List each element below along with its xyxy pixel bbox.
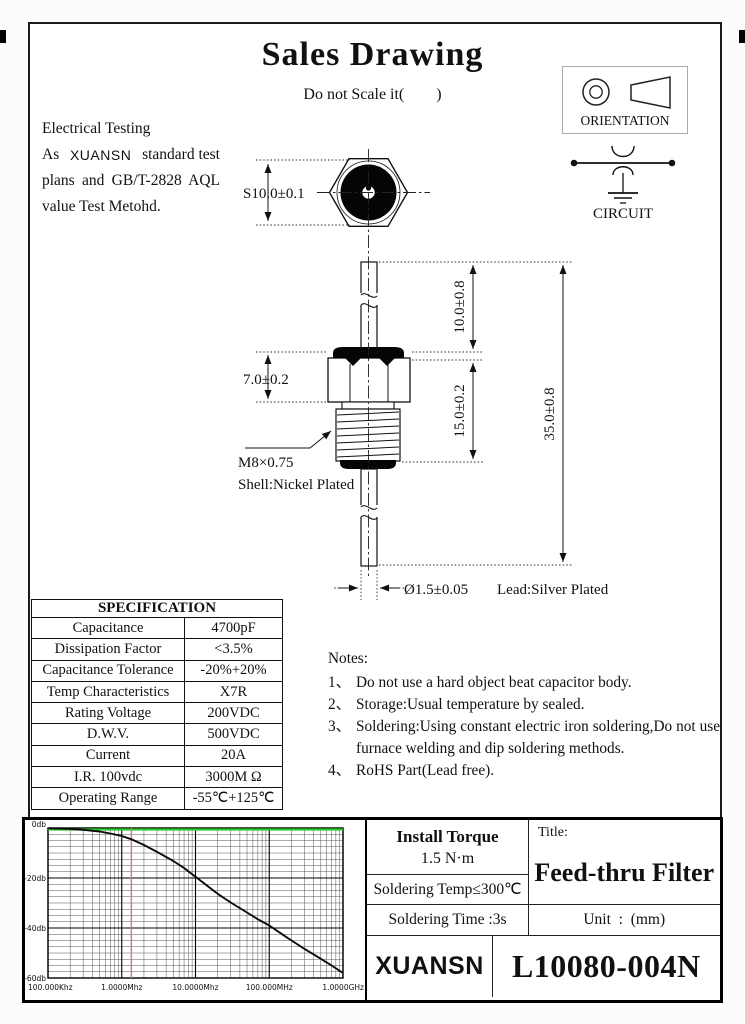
note-text: Storage:Usual temperature by sealed.	[356, 696, 585, 713]
circuit-label: CIRCUIT	[558, 206, 688, 223]
spec-label: Operating Range	[32, 788, 185, 809]
spec-value: X7R	[185, 681, 283, 702]
note-number: 1、	[328, 672, 351, 694]
spec-value: <3.5%	[185, 639, 283, 660]
spec-label: Current	[32, 745, 185, 766]
note-number: 4、	[328, 760, 351, 782]
specification-table: SPECIFICATION Capacitance4700pF Dissipat…	[31, 599, 283, 810]
svg-text:100.000MHz: 100.000MHz	[246, 983, 293, 992]
capacitor-end-hole-icon	[590, 86, 602, 98]
soldering-time-cell: Soldering Time :3s	[367, 905, 529, 936]
brand-name-inline: XUANSN	[70, 142, 131, 168]
spec-label: Rating Voltage	[32, 703, 185, 724]
table-row: Capacitance4700pF	[32, 618, 283, 639]
capacitor-side-view-icon	[631, 77, 670, 108]
bottom-block: 0db-20db-40db-60db100.000Khz1.0000Mhz10.…	[22, 817, 723, 1003]
part-number-cell: L10080-004N	[493, 936, 720, 997]
notes-section: Notes: 1、Do not use a hard object beat c…	[328, 648, 720, 782]
table-row: Dissipation Factor<3.5%	[32, 639, 283, 660]
note-number: 2、	[328, 694, 351, 716]
svg-text:-40db: -40db	[25, 924, 46, 933]
spec-label: I.R. 100vdc	[32, 767, 185, 788]
table-row: D.W.V.500VDC	[32, 724, 283, 745]
spec-label: D.W.V.	[32, 724, 185, 745]
note-line-2-word: standard test	[142, 142, 220, 168]
chart-canvas: 0db-20db-40db-60db100.000Khz1.0000Mhz10.…	[25, 820, 365, 1000]
svg-text:10.0000Mhz: 10.0000Mhz	[172, 983, 218, 992]
spec-value: 3000M Ω	[185, 767, 283, 788]
electrical-testing-note: Electrical Testing As XUANSN standard te…	[42, 116, 220, 220]
install-torque-label: Install Torque	[396, 827, 498, 847]
spec-table-title: SPECIFICATION	[32, 600, 283, 618]
note-text: RoHS Part(Lead free).	[356, 762, 494, 779]
table-row: Current20A	[32, 745, 283, 766]
svg-text:-60db: -60db	[25, 974, 46, 983]
unit-cell: Unit : (mm)	[529, 905, 720, 936]
svg-text:100.000Khz: 100.000Khz	[28, 983, 73, 992]
orientation-label: ORIENTATION	[563, 113, 687, 129]
title-block: Install Torque 1.5 N·m Soldering Temp≤30…	[365, 820, 720, 1000]
notes-heading: Notes:	[328, 648, 720, 670]
table-row: Operating Range-55℃+125℃	[32, 788, 283, 809]
spec-label: Temp Characteristics	[32, 681, 185, 702]
table-row: Temp CharacteristicsX7R	[32, 681, 283, 702]
install-torque-value: 1.5 N·m	[421, 850, 474, 868]
table-row: Rating Voltage200VDC	[32, 703, 283, 724]
orientation-symbol-icon	[563, 67, 687, 113]
spec-value: 20A	[185, 745, 283, 766]
note-text: Do not use a hard object beat capacitor …	[356, 674, 632, 691]
note-line-2: As XUANSN standard test	[42, 142, 220, 168]
spec-value: 200VDC	[185, 703, 283, 724]
svg-text:1.0000GHz: 1.0000GHz	[322, 983, 364, 992]
title-cell: Title: Feed-thru Filter	[529, 820, 720, 905]
orientation-box: ORIENTATION	[562, 66, 688, 134]
install-torque-cell: Install Torque 1.5 N·m	[367, 820, 529, 875]
soldering-temp-cell: Soldering Temp≤300℃	[367, 875, 529, 905]
feedthru-circuit-icon	[558, 140, 688, 206]
spec-label: Dissipation Factor	[32, 639, 185, 660]
note-text: Soldering:Using constant electric iron s…	[356, 718, 720, 757]
table-row: Capacitance Tolerance-20%+20%	[32, 660, 283, 681]
list-item: 2、Storage:Usual temperature by sealed.	[328, 694, 720, 716]
list-item: 4、RoHS Part(Lead free).	[328, 760, 720, 782]
spec-value: -55℃+125℃	[185, 788, 283, 809]
list-item: 1、Do not use a hard object beat capacito…	[328, 672, 720, 694]
note-line-1: Electrical Testing	[42, 116, 220, 142]
brand-cell: XUANSN	[367, 936, 493, 997]
spec-value: 4700pF	[185, 618, 283, 639]
spec-label: Capacitance	[32, 618, 185, 639]
capacitor-end-view-icon	[583, 79, 609, 105]
note-number: 3、	[328, 716, 351, 738]
note-line-2-word: As	[42, 142, 59, 168]
spec-label: Capacitance Tolerance	[32, 660, 185, 681]
spec-value: 500VDC	[185, 724, 283, 745]
note-line-3: plans and GB/T-2828 AQL	[42, 168, 220, 194]
insertion-loss-chart: 0db-20db-40db-60db100.000Khz1.0000Mhz10.…	[25, 820, 365, 1000]
svg-text:1.0000Mhz: 1.0000Mhz	[101, 983, 142, 992]
spec-value: -20%+20%	[185, 660, 283, 681]
svg-text:-20db: -20db	[25, 874, 46, 883]
table-row: I.R. 100vdc3000M Ω	[32, 767, 283, 788]
svg-text:0db: 0db	[32, 820, 47, 829]
title-label: Title:	[538, 825, 568, 841]
note-line-4: value Test Metohd.	[42, 194, 220, 220]
list-item: 3、Soldering:Using constant electric iron…	[328, 716, 720, 760]
product-title: Feed-thru Filter	[529, 858, 720, 888]
